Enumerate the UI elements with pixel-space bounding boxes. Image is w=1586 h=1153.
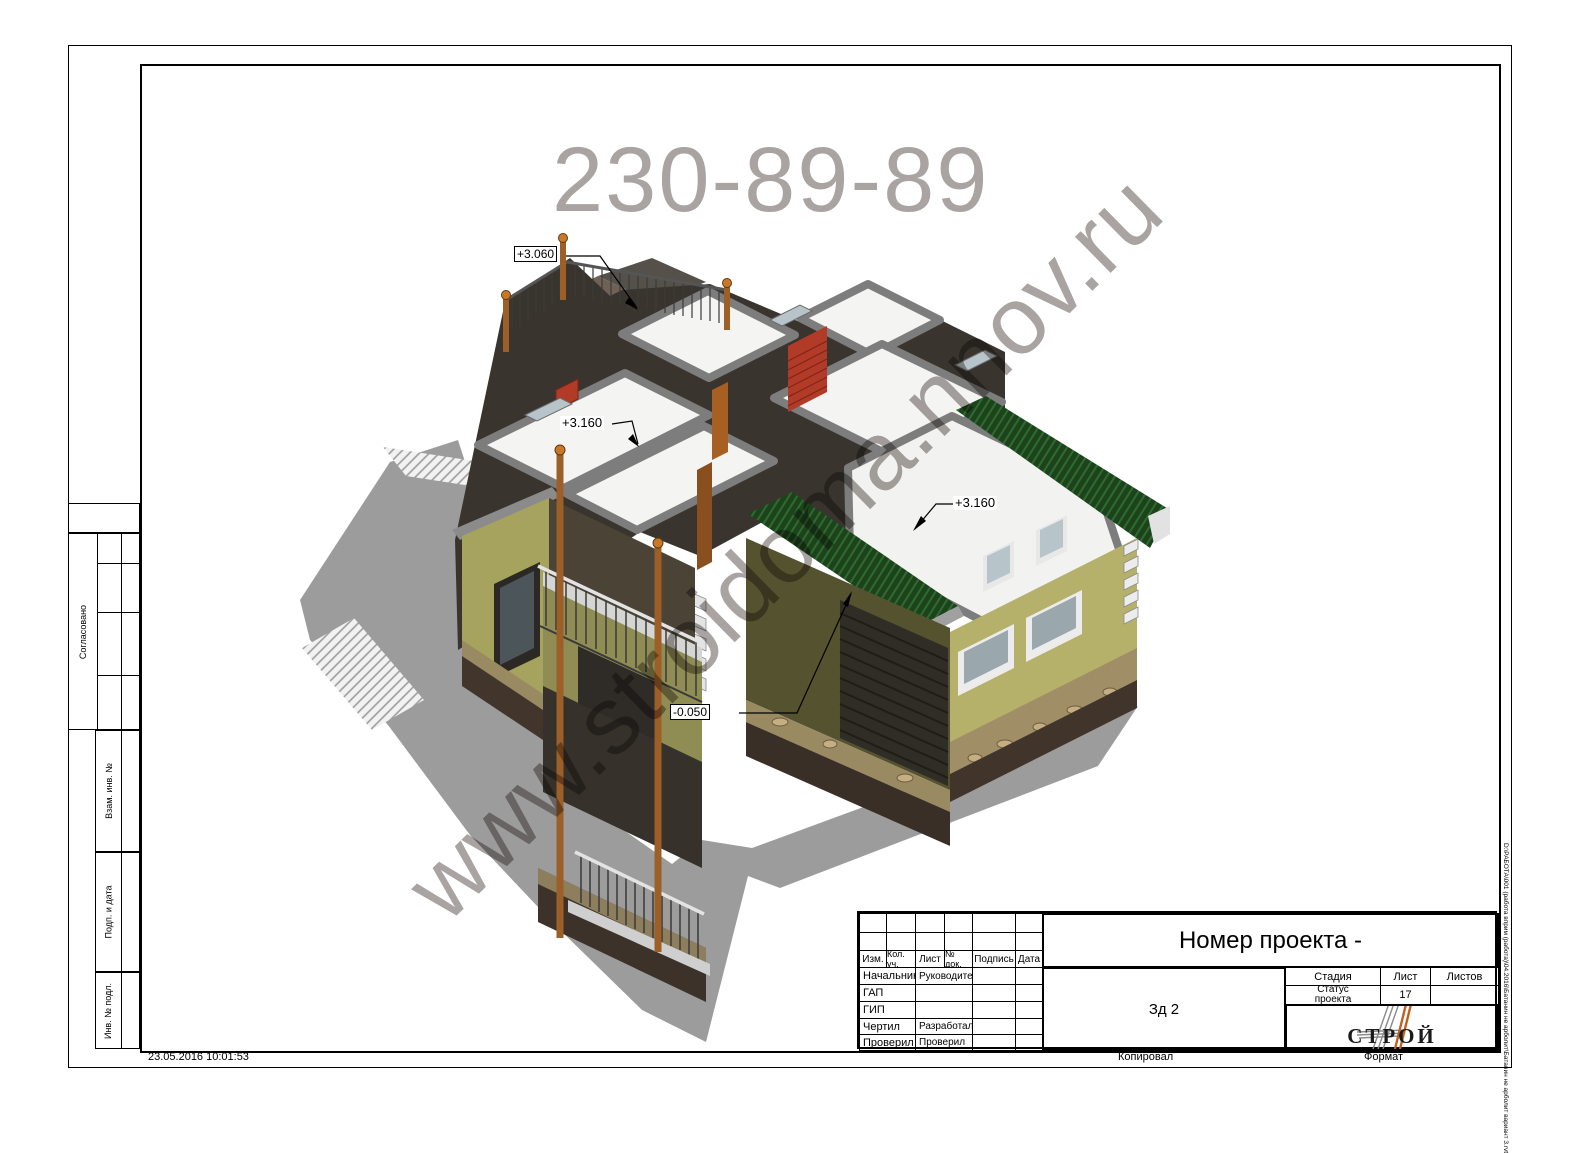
sign-date-value-cell [121, 852, 140, 972]
logo-cell: СТРОЙ [1285, 1004, 1499, 1051]
row-proveril-role: Проверил [915, 1034, 973, 1051]
row-gip: ГИП [859, 1001, 916, 1019]
row-nachalnik: Начальник [859, 967, 916, 985]
drawing-frame [140, 64, 1501, 1053]
col-list: Лист [915, 950, 945, 968]
title-block: Изм. Кол. уч. Лист № док. Подпись Дата Н… [857, 911, 1497, 1049]
sheet-header: Лист [1380, 967, 1431, 986]
stage-value: Статус проекта [1285, 985, 1381, 1005]
sheet-number: 17 [1380, 985, 1431, 1005]
stage-header: Стадия [1285, 967, 1381, 986]
col-data: Дата [1015, 950, 1043, 968]
sheets-total [1430, 985, 1499, 1005]
agreed-block: Согласовано [68, 533, 140, 730]
col-ndok: № док. [944, 950, 973, 968]
agreed-label: Согласовано [78, 604, 88, 658]
interchange-inv-value-cell [121, 730, 140, 852]
sign-date-label: Подп. и дата [104, 885, 114, 938]
project-title-cell: Номер проекта - [1042, 913, 1499, 968]
sheets-header: Листов [1430, 967, 1499, 986]
inv-original-block: Инв. № подл. [95, 972, 122, 1049]
left-margin-empty-box [68, 503, 140, 533]
row-chertil-role: Разработал [915, 1018, 973, 1035]
interchange-inv-label: Взам. инв. № [104, 763, 114, 819]
row-gap: ГАП [859, 984, 916, 1002]
agreed-label-cell: Согласовано [69, 534, 98, 729]
sheet-name-cell: Зд 2 [1042, 967, 1286, 1051]
col-izm: Изм. [859, 950, 887, 968]
interchange-inv-block: Взам. инв. № [95, 730, 122, 852]
sheet-name: Зд 2 [1149, 1001, 1179, 1018]
format-label: Формат [1364, 1051, 1403, 1063]
row-proveril: Проверил [859, 1034, 916, 1051]
col-kol-uch: Кол. уч. [886, 950, 916, 968]
row-nachalnik-role: Руководитель [915, 967, 973, 985]
logo-text: СТРОЙ [1287, 1024, 1497, 1049]
inv-original-label: Инв. № подл. [104, 982, 114, 1038]
row-chertil: Чертил [859, 1018, 916, 1035]
copied-label: Копировал [1118, 1051, 1173, 1063]
col-podpis: Подпись [972, 950, 1016, 968]
print-timestamp: 23.05.2016 10:01:53 [148, 1051, 249, 1063]
inv-original-value-cell [121, 972, 140, 1049]
project-title: Номер проекта - [1179, 927, 1362, 955]
sign-date-block: Подп. и дата [95, 852, 122, 972]
source-file-path: D:\РАБОТА\001 (работа вприм (работа)\04.… [1502, 843, 1509, 1153]
